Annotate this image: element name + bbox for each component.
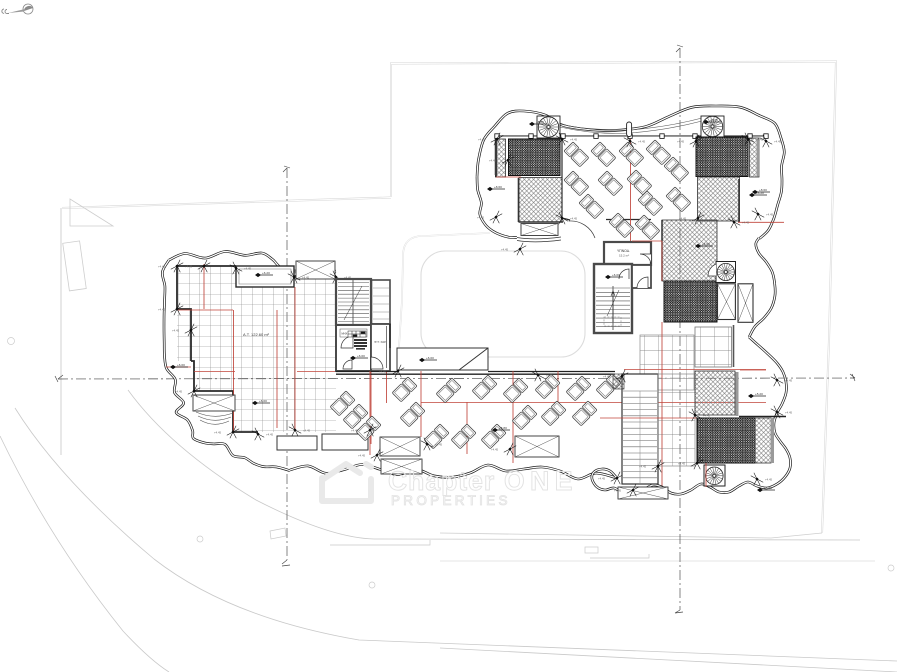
svg-text:+6.00: +6.00 (612, 273, 620, 277)
svg-text:Chapter: Chapter (388, 466, 495, 496)
svg-text:ONE: ONE (504, 466, 578, 496)
svg-text:+8.85: +8.85 (536, 120, 544, 124)
svg-text:+4.45: +4.45 (614, 489, 622, 493)
svg-text:+4.45: +4.45 (175, 390, 183, 394)
svg-text:+4.45: +4.45 (598, 477, 606, 481)
svg-text:+4.45: +4.45 (638, 140, 646, 144)
svg-text:+4.45: +4.45 (570, 138, 578, 142)
svg-text:+5.80: +5.80 (499, 426, 507, 430)
svg-text:+4.45: +4.45 (489, 159, 497, 163)
svg-text:+4.45: +4.45 (766, 213, 774, 217)
svg-text:+4.45: +4.45 (570, 217, 578, 221)
svg-text:+8.85: +8.85 (710, 118, 718, 122)
svg-text:+4.45: +4.45 (303, 429, 311, 433)
svg-text:+5.20: +5.20 (755, 392, 763, 396)
svg-text:+4.45: +4.45 (491, 448, 499, 452)
svg-text:+4.45: +4.45 (703, 414, 711, 418)
svg-text:+4.45: +4.45 (302, 276, 310, 280)
svg-text:ΥΠΝΟΔ.: ΥΠΝΟΔ. (617, 249, 630, 253)
svg-text:+4.45: +4.45 (244, 267, 252, 271)
svg-text:+4.45: +4.45 (677, 140, 685, 144)
svg-text:+4.45: +4.45 (501, 248, 509, 252)
svg-text:+4.45: +4.45 (185, 265, 193, 269)
svg-text:+4.45: +4.45 (477, 216, 485, 220)
svg-text:+4.45: +4.45 (603, 375, 611, 379)
svg-text:+4.45: +4.45 (765, 478, 773, 482)
svg-text:+4.45: +4.45 (546, 374, 554, 378)
svg-text:+6.00: +6.00 (426, 356, 434, 360)
svg-text:PROPERTIES: PROPERTIES (391, 493, 511, 508)
svg-text:15.2 m²: 15.2 m² (619, 254, 629, 258)
svg-text:+6.00: +6.00 (702, 242, 710, 246)
svg-text:+4.45: +4.45 (351, 429, 359, 433)
svg-text:+4.45: +4.45 (742, 221, 750, 225)
svg-text:+6.00: +6.00 (259, 399, 267, 403)
svg-text:+4.45: +4.45 (785, 411, 793, 415)
svg-text:+4.45: +4.45 (785, 379, 793, 383)
svg-text:+4.45: +4.45 (358, 454, 366, 458)
svg-text:+6.20: +6.20 (756, 191, 764, 195)
svg-text:+4.45: +4.45 (478, 138, 486, 142)
svg-text:+4.45: +4.45 (435, 443, 443, 447)
svg-text:+4.45: +4.45 (266, 433, 274, 437)
svg-text:+6.20: +6.20 (262, 271, 270, 275)
svg-text:+8.60: +8.60 (494, 185, 502, 189)
svg-text:ΨΥΓ. ΧΩΡ.: ΨΥΓ. ΧΩΡ. (374, 340, 387, 344)
svg-text:+4.45: +4.45 (756, 138, 764, 142)
svg-text:+6.00: +6.00 (357, 354, 365, 358)
svg-text:+4.45: +4.45 (774, 140, 782, 144)
svg-text:+4.45: +4.45 (158, 308, 166, 312)
svg-text:+4.45: +4.45 (639, 465, 647, 469)
svg-text:+4.45: +4.45 (158, 265, 166, 269)
svg-text:+4.45: +4.45 (379, 370, 387, 374)
svg-text:+4.45: +4.45 (214, 431, 222, 435)
svg-text:+6.00: +6.00 (177, 363, 185, 367)
svg-text:Α.Τ. 122.60 m²: Α.Τ. 122.60 m² (243, 332, 270, 337)
svg-text:+5.80: +5.80 (764, 486, 772, 490)
svg-text:+4.45: +4.45 (172, 329, 180, 333)
svg-text:+4.45: +4.45 (678, 462, 686, 466)
